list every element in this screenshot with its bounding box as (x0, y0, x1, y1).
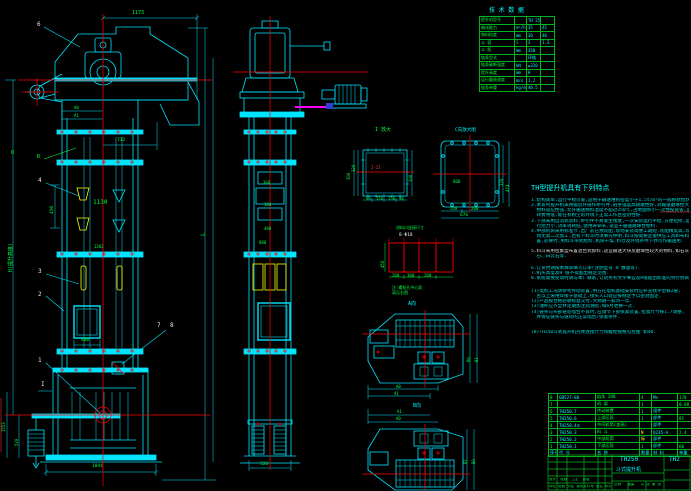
tech-table-title: 技 术 数 据 (489, 8, 524, 14)
bom-cell: 4 (549, 422, 558, 429)
dim-360: 360 (263, 181, 270, 185)
tech-cell (541, 84, 555, 92)
bom-cell: 1 (640, 415, 652, 422)
tech-cell: 提升机型号 (480, 17, 515, 25)
bom-cell (678, 408, 691, 415)
tech-row: 斗 距mm350 (480, 47, 555, 55)
titleblock-rev-row: 标记 处数 分区 更改文件号 签名 年月日 (549, 485, 611, 489)
plan-b-a0: A0 (396, 417, 401, 421)
plan-b-b0: B0 (472, 459, 476, 464)
bolt-dim-200b: 200 (424, 274, 431, 278)
tech-cell (541, 54, 555, 62)
plan-b-linework (368, 409, 474, 490)
tech-row: 提升机型号TH 250 (480, 17, 555, 25)
bom-cell: Q235-A (652, 429, 678, 436)
tech-row: 链条型式环链 (480, 54, 555, 62)
bom-cell: 6 (549, 408, 558, 415)
detail-i-b0: 90 (366, 197, 371, 201)
callout-3: 3 (38, 269, 42, 275)
plan-b-a1: A1 (397, 410, 402, 414)
detail-c-676: 676 (460, 214, 468, 219)
features-text-block: TH型提升机具有下列特点 1.结构简单,运行平稳可靠,适用于输送堆积密度小于1.… (531, 183, 689, 335)
callout-6: 6 (37, 22, 41, 28)
bom-cell: TH250.1 (558, 443, 596, 450)
detail-i-320: 320 (352, 165, 356, 172)
bom-cell: 1 (640, 401, 652, 408)
dim-450: 450 (51, 206, 56, 214)
bolt-layout-title: 进料口连接尺寸 (396, 226, 424, 230)
dim-a0: A0 (74, 106, 79, 110)
feature-line: 8.系统需要变动时请与本厂联系,订货另有文字事宜及H值超出标准的另行协商. (531, 276, 689, 281)
tech-cell: 35 (527, 24, 541, 32)
detail-c-240: 240 (450, 207, 457, 211)
bom-cell: 2 (549, 436, 558, 443)
feature-line: (8)TH250斗式提升机壳体连接尺寸和螺栓规格见左图 如40. (531, 330, 689, 335)
detail-c-200: 200 (471, 207, 478, 211)
bom-cell: 85 (678, 415, 691, 422)
bom-cell: 1 (549, 443, 558, 450)
bom-cell: 0.08 (678, 401, 691, 408)
bom-cell: 链条 20B (596, 394, 640, 401)
tech-cell: 1.2 (527, 77, 541, 85)
bom-cell: N (640, 429, 652, 436)
callout-7: 7 (157, 323, 161, 329)
feature-line: (4)链条与头部链轮啮合不良时,应调节下部张紧装置,拉紧尺寸按1.7调整, (531, 310, 689, 315)
section-label-d: D (11, 151, 14, 156)
bom-row: 1TH250.1下部区段1部件60 (549, 443, 691, 450)
bolt-dim-200a: 200 (392, 274, 399, 278)
bom-cell (558, 401, 596, 408)
drawing-canvas[interactable]: 1173 6 D B 4 450 1130 712 1202 3 2 400 7… (0, 0, 691, 491)
tech-cell (541, 17, 555, 25)
bom-cell: 部件 (652, 436, 678, 443)
bom-cell: 料 斗 (596, 429, 640, 436)
bom-cell: 部件 (652, 422, 678, 429)
detail-i-red-label: I-II (371, 166, 381, 170)
bom-table: 8GB527-88链条 20B4Mn170 7机 架10.08 6TH250.7… (548, 393, 691, 457)
dim-label-h: H(提升高度) (9, 243, 14, 272)
dim-a1: A1 (74, 114, 79, 118)
dim-180: 180 (264, 203, 271, 207)
tech-cell: kN (515, 62, 527, 70)
tech-cell (541, 62, 555, 70)
bom-cell: 1 (640, 443, 652, 450)
tech-cell: 环链 (527, 54, 541, 62)
bom-cell: 7 (549, 401, 558, 408)
bom-cell: TH250.6 (558, 415, 596, 422)
tech-cell: H (527, 69, 541, 77)
bom-header-cell: 序号 (549, 450, 558, 457)
plan-a-b0: B0 (467, 357, 471, 362)
feature-line: 3.下部采用自流式装料,牵引件不易发生堵塞,一次安装运行平稳,方便检修,运 (531, 219, 689, 224)
tech-cell: 1.3 (541, 39, 555, 47)
bom-cell: 3 (549, 429, 558, 436)
dim-1173: 1173 (132, 11, 144, 16)
bom-row: 3TH250.3料 斗NQ235-A2.4 (549, 429, 691, 436)
tech-cell (541, 77, 555, 85)
tech-cell (515, 17, 527, 25)
tech-row: 斗 容l31.3 (480, 39, 555, 47)
plan-b-b1: B1 (464, 459, 468, 464)
bom-header-cell: 代 号 (558, 450, 596, 457)
detail-c-600: 600 (453, 180, 460, 184)
bolt-layout-callout: 8-Φ18 (399, 234, 413, 239)
titleblock-model-right: TH2 (669, 457, 680, 463)
detail-i-title: I 放大 (375, 128, 391, 133)
titleblock-model: TH250 (620, 457, 638, 463)
dim-400-side: 400 (264, 227, 271, 231)
dim-label-l: L (201, 232, 207, 236)
tech-cell: 链条型式 (480, 54, 515, 62)
dim-1202: 1202 (94, 245, 104, 249)
tech-data-table: 提升机型号TH 250 输送能力m³/h3545 物料粒度mm3040 斗 容l… (479, 16, 555, 92)
bolt-dim-300: 300 (407, 274, 414, 278)
tech-row: 链条破断强度kN≥320 (480, 62, 555, 70)
bom-cell: 4 (640, 394, 652, 401)
tech-cell: 斗 容 (480, 39, 515, 47)
tech-cell: 运行圆周速度 (480, 77, 515, 85)
dim-400: 400 (81, 339, 89, 344)
bom-cell: 组件 (652, 408, 678, 415)
tech-row: 输送能力m³/h3545 (480, 24, 555, 32)
bom-cell: 标 (640, 436, 652, 443)
tech-cell: mm (515, 47, 527, 55)
bom-cell: 传动装置 (596, 408, 640, 415)
bom-cell: 170 (678, 394, 691, 401)
tech-cell: 输送能力 (480, 24, 515, 32)
tech-row: 物料粒度mm3040 (480, 32, 555, 40)
tech-row: 提升高度mmH (480, 69, 555, 77)
dim-712: 712 (117, 139, 125, 144)
plan-a-a0: A0 (396, 385, 401, 389)
detail-c-474: 474 (506, 185, 510, 192)
bom-cell: 2.4 (678, 429, 691, 436)
bom-cell: 机 架 (596, 401, 640, 408)
bom-row: 4TH250.4①中间机筒(加高)部件 (549, 422, 691, 429)
tech-cell: l (515, 39, 527, 47)
tech-cell: 链条单重 (480, 84, 515, 92)
detail-i-b2: 156 (388, 197, 395, 201)
tech-cell: mm (515, 69, 527, 77)
bom-row: 6TH250.7传动装置1组件 (549, 408, 691, 415)
dim-1130: 1130 (93, 200, 107, 206)
bom-row: 2TH250.2中部机筒标部件 (549, 436, 691, 443)
tech-cell: ≥320 (527, 62, 541, 70)
tech-row: 链条单重kg/m40.5 (480, 84, 555, 92)
detail-c-centerlines (433, 135, 507, 213)
bom-cell: TH250.2 (558, 436, 596, 443)
tech-cell (541, 47, 555, 55)
tech-cell: 350 (527, 47, 541, 55)
bom-cell: GB527-88 (558, 394, 596, 401)
bom-cell: 60 (678, 443, 691, 450)
callout-2: 2 (38, 292, 42, 298)
side-view-linework (240, 21, 367, 471)
bom-cell: 5 (549, 415, 558, 422)
bom-cell: 1 (640, 408, 652, 415)
detail-i-b1: 156 (376, 197, 383, 201)
dim-1553: 1553 (2, 422, 6, 432)
bom-row: 7机 架10.08 (549, 401, 691, 408)
plan-b-label: B向 (413, 404, 421, 409)
section-mark-i: I (41, 382, 45, 388)
bom-cell: 上部区段 (596, 415, 640, 422)
tech-cell (541, 69, 555, 77)
detail-i-linework (354, 148, 412, 202)
bom-cell (678, 422, 691, 429)
features-title: TH型提升机具有下列特点 (531, 183, 689, 193)
callout-b: B (37, 155, 40, 160)
bom-cell: TH250.3 (558, 429, 596, 436)
plan-a-label: A向 (408, 302, 416, 307)
bom-row: 5TH250.6上部区段1部件85 (549, 415, 691, 422)
dim-520: 520 (15, 439, 19, 446)
motor-accent-block (326, 103, 333, 109)
bom-cell: 部件 (652, 415, 678, 422)
bom-cell: 8 (549, 394, 558, 401)
tech-cell: m³/h (515, 24, 527, 32)
tech-cell: m/s (515, 77, 527, 85)
dim-526: 526 (260, 463, 268, 468)
plan-a-a1: A1 (394, 392, 399, 396)
plan-a-linework (368, 314, 477, 399)
feature-line: 置,必要时,用料斗带式给料,机筒干燥,料仓及环境条件下亦可作输送用. (531, 239, 689, 244)
bom-row: 8GB527-88链条 20B4Mn170 (549, 394, 691, 401)
tech-cell: 链条破断强度 (480, 62, 515, 70)
bom-cell: Mn (652, 394, 678, 401)
tech-cell: 40.5 (527, 84, 541, 92)
dim-1044: 1044 (92, 465, 103, 470)
bom-header-cell: 数量 (640, 450, 652, 457)
detail-c-title: C向放大图 (455, 129, 476, 134)
bom-cell: 中间机筒(加高) (596, 422, 640, 429)
plan-a-b1: B1 (475, 357, 479, 362)
tech-row: 运行圆周速度m/s1.2 (480, 77, 555, 85)
bom-cell: 部件 (652, 443, 678, 450)
tech-cell: 斗 距 (480, 47, 515, 55)
tech-cell: 45 (541, 24, 555, 32)
callout-8: 8 (170, 323, 174, 329)
titleblock-name: 斗式提升机 (616, 468, 641, 473)
callout-1: 1 (38, 358, 42, 364)
tech-cell: mm (515, 32, 527, 40)
bom-cell: TH250.7 (558, 408, 596, 415)
bom-cell: 中部机筒 (596, 436, 640, 443)
dim-888: 888 (259, 241, 266, 245)
bom-cell (652, 401, 678, 408)
tech-cell: 30 (527, 32, 541, 40)
detail-i-300: 300 (409, 175, 413, 182)
tech-cell: 40 (541, 32, 555, 40)
tech-cell: 物料粒度 (480, 32, 515, 40)
titleblock-scale-row: 比例 重量 共 张 第 张 (614, 483, 662, 487)
detail-i-b3: 90 (399, 197, 404, 201)
tech-cell (515, 54, 527, 62)
tech-cell: 提升高度 (480, 69, 515, 77)
tech-cell: 3 (527, 39, 541, 47)
bolt-dim-450: 450 (381, 261, 385, 268)
bom-cell: TH250.4① (558, 422, 596, 429)
bolt-note-2: 离见右图 (392, 291, 408, 295)
tech-cell: kg/m (515, 84, 527, 92)
side-view-buckets (253, 264, 286, 290)
detail-i-390: 390 (347, 173, 351, 180)
detail-c-320: 320 (500, 179, 504, 186)
tech-cell: TH 250 (527, 17, 541, 25)
callout-4: 4 (38, 178, 42, 184)
bom-cell (678, 436, 691, 443)
bom-cell: 下部区段 (596, 443, 640, 450)
bom-cell (640, 422, 652, 429)
side-view-centerlines (233, 16, 368, 470)
titleblock-sign-row: 设计 校核 工艺 批准 (549, 478, 611, 482)
